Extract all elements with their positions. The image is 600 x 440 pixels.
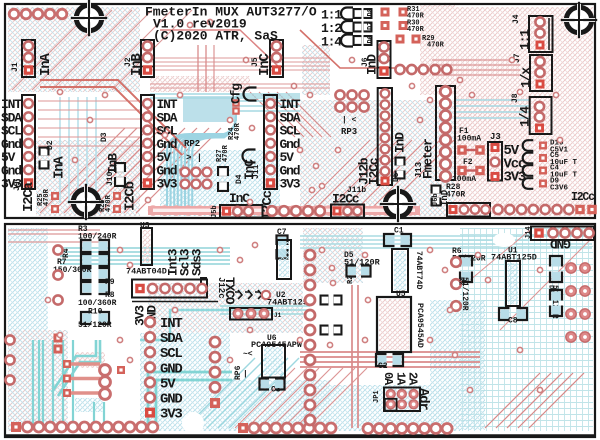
svg-text:D6: D6: [367, 35, 375, 43]
svg-text:3V3: 3V3: [280, 177, 301, 192]
svg-text:JP1: JP1: [373, 390, 381, 403]
svg-text:Cfg: Cfg: [229, 83, 244, 104]
svg-text:D5: D5: [392, 172, 401, 182]
svg-text:5V: 5V: [160, 376, 176, 392]
svg-text:RP3: RP3: [341, 127, 357, 137]
svg-text:InD: InD: [365, 54, 380, 75]
svg-text:470R: 470R: [407, 26, 425, 34]
svg-text:1:4: 1:4: [321, 35, 342, 50]
svg-text:J4: J4: [512, 14, 521, 24]
svg-text:470R: 470R: [234, 122, 242, 140]
svg-text:51/120R: 51/120R: [78, 321, 112, 330]
svg-text:470R: 470R: [105, 194, 113, 212]
svg-text:SDA: SDA: [160, 331, 183, 347]
svg-text:0A: 0A: [381, 372, 395, 386]
svg-text:GND: GND: [160, 361, 182, 377]
svg-text:I2Cc: I2Cc: [571, 191, 595, 204]
svg-text:InB: InB: [129, 53, 145, 76]
svg-text:J14: J14: [525, 226, 533, 239]
svg-text:1:1: 1:1: [518, 29, 533, 50]
svg-text:D8: D8: [367, 8, 375, 16]
svg-text:2A: 2A: [406, 372, 420, 386]
svg-text:C3V6: C3V6: [550, 185, 569, 193]
svg-text:INT: INT: [160, 316, 182, 332]
svg-text:InB: InB: [106, 153, 121, 174]
svg-text:1A: 1A: [394, 372, 408, 386]
svg-text:RP2: RP2: [184, 139, 200, 149]
svg-text:|: |: [243, 370, 248, 379]
svg-text:TXCO: TXCO: [222, 277, 237, 305]
svg-text:J1: J1: [274, 312, 282, 319]
svg-text:> |: > |: [186, 153, 202, 163]
svg-text:470R: 470R: [427, 42, 445, 50]
svg-text:GND: GND: [160, 392, 182, 408]
svg-text:470R: 470R: [43, 188, 51, 206]
svg-text:InC: InC: [229, 191, 250, 206]
svg-text:D3: D3: [100, 132, 109, 142]
svg-text:I2Cc: I2Cc: [367, 157, 382, 185]
svg-text:D4: D4: [235, 174, 244, 184]
svg-text:470R: 470R: [222, 144, 230, 162]
svg-text:InA: InA: [52, 156, 68, 179]
svg-text:J6b: J6b: [432, 193, 440, 206]
svg-text:PCA9545AD: PCA9545AD: [415, 303, 424, 348]
svg-text:~<: ~<: [243, 350, 253, 359]
svg-text:D7: D7: [367, 22, 375, 30]
svg-text:100mA: 100mA: [457, 135, 481, 144]
svg-text:InD: InD: [393, 132, 408, 153]
svg-text:C8: C8: [508, 317, 518, 326]
svg-text:InC: InC: [257, 53, 273, 76]
svg-text:InA: InA: [38, 53, 54, 76]
svg-text:C2: C2: [378, 362, 388, 371]
svg-text:GND: GND: [550, 236, 571, 251]
svg-text:Fmeter: Fmeter: [421, 139, 436, 179]
svg-text:3V3: 3V3: [157, 177, 178, 192]
svg-text:R2: R2: [456, 277, 464, 285]
svg-text:R9: R9: [105, 278, 115, 287]
svg-text:J5b: J5b: [211, 205, 219, 218]
svg-text:RP6: RP6: [234, 365, 243, 380]
svg-text:D2: D2: [46, 140, 55, 150]
svg-text:74ABT04D: 74ABT04D: [126, 267, 167, 277]
svg-text:J1: J1: [11, 62, 20, 72]
svg-text:(C)2020 ATR, SaS: (C)2020 ATR, SaS: [153, 29, 278, 44]
svg-text:3V3: 3V3: [160, 407, 182, 423]
svg-text:J11: J11: [252, 164, 261, 179]
svg-text:1/x: 1/x: [519, 67, 534, 88]
svg-text:F2: F2: [463, 158, 473, 167]
svg-text:I2Ca: I2Ca: [21, 181, 37, 212]
svg-text:R2: R2: [347, 276, 355, 284]
svg-text:| <: | <: [342, 116, 357, 125]
svg-text:74ABT74D: 74ABT74D: [414, 251, 423, 290]
svg-text:SCL: SCL: [160, 346, 182, 362]
svg-text:Sds3: Sds3: [190, 248, 205, 276]
svg-text:J3: J3: [490, 132, 501, 142]
